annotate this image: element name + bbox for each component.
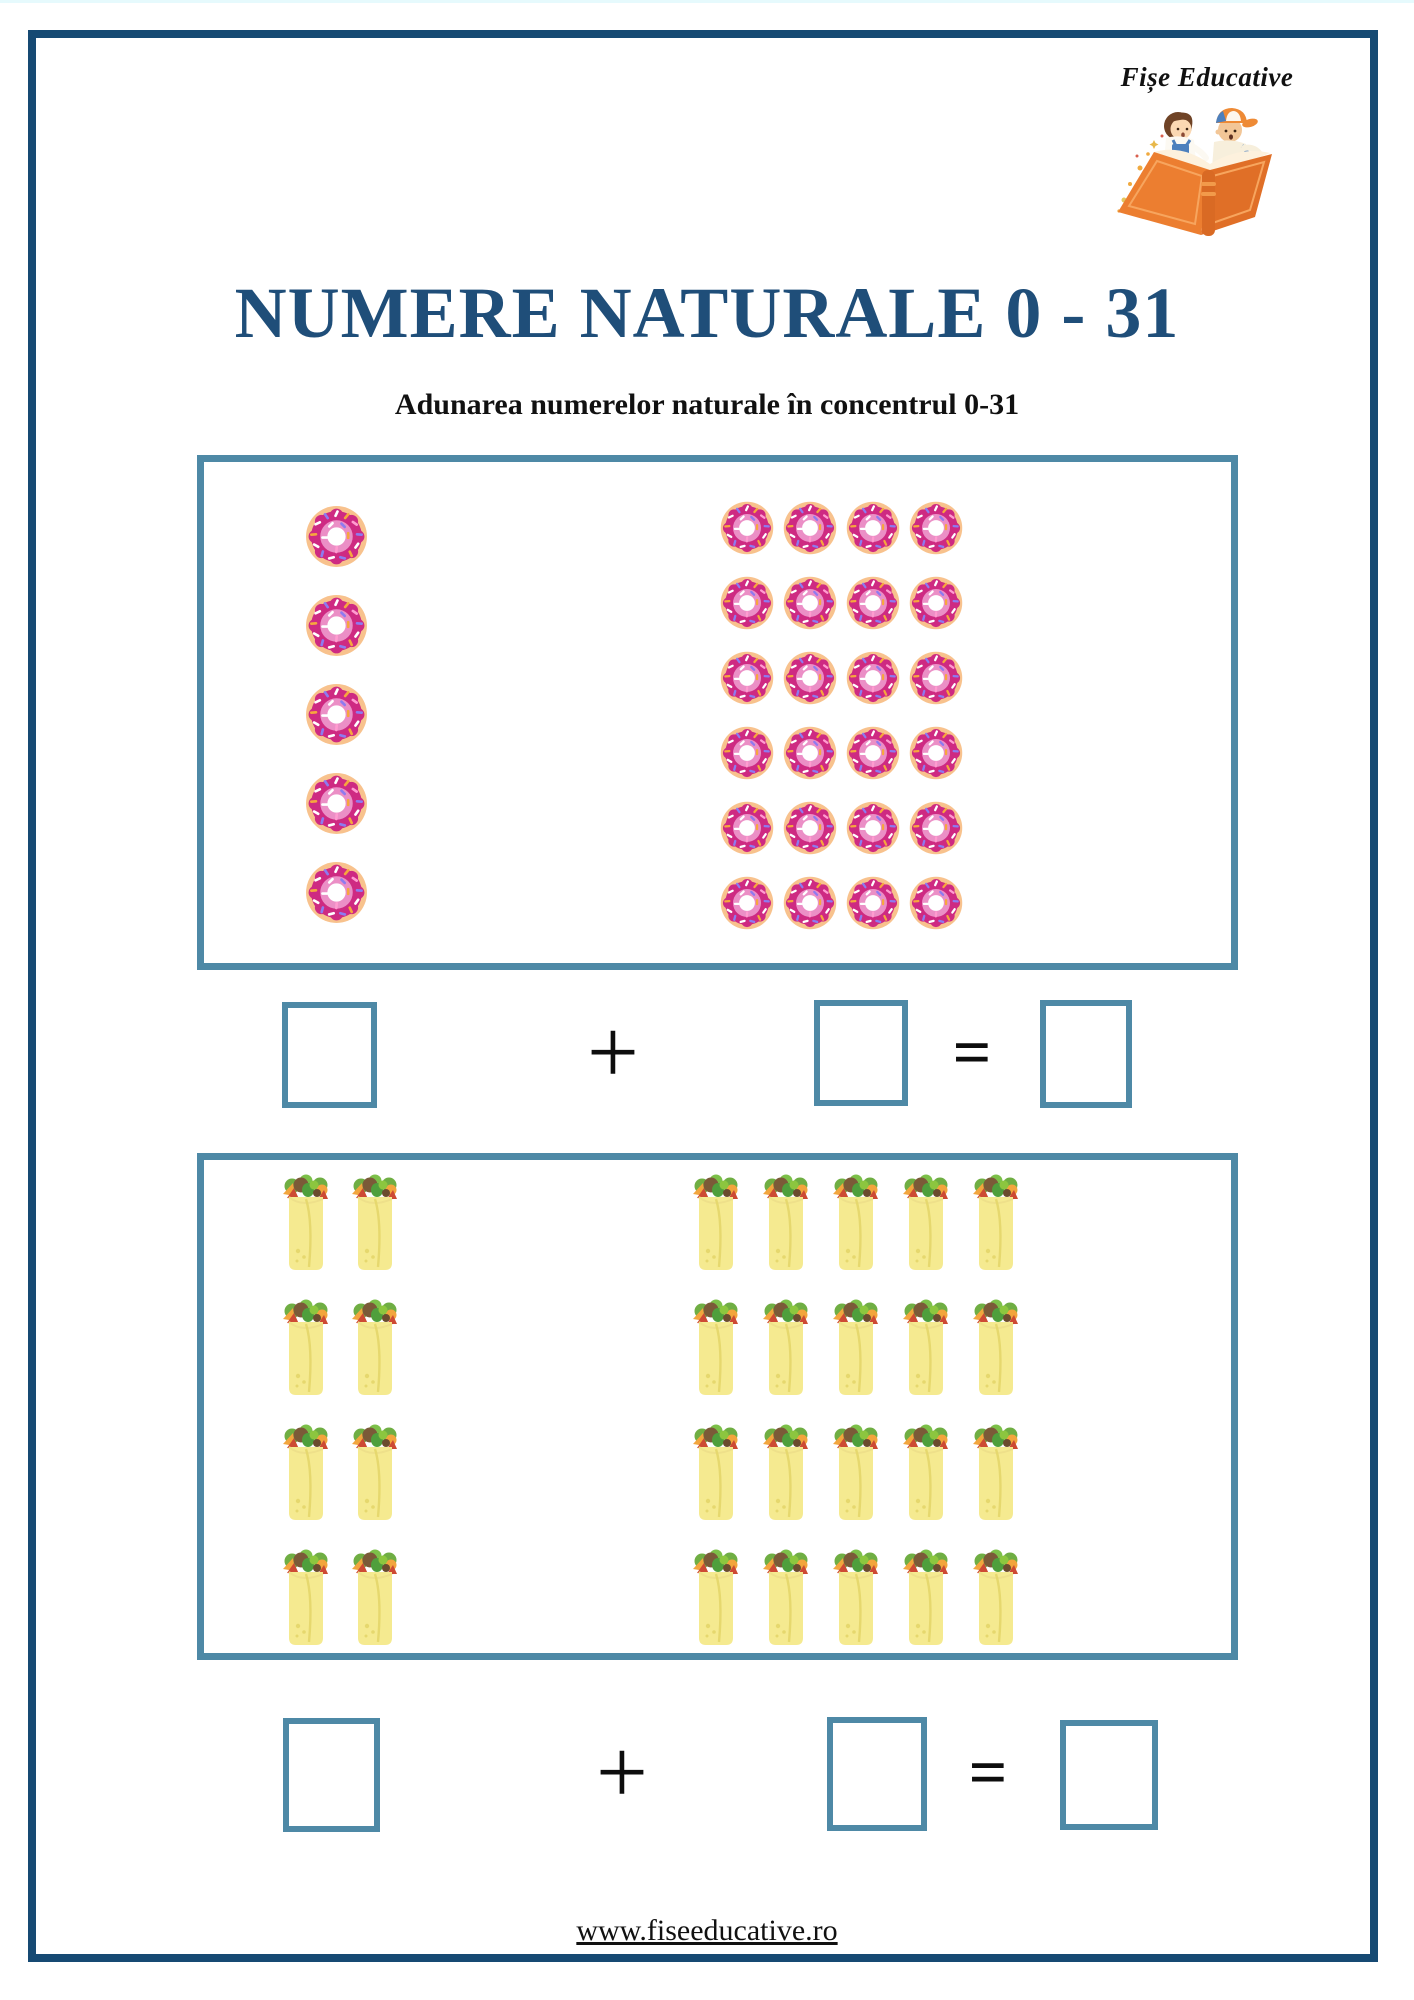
burrito-icon xyxy=(968,1172,1024,1272)
burrito-icon xyxy=(968,1422,1024,1522)
burrito-icon xyxy=(968,1297,1024,1397)
donut-icon xyxy=(845,575,901,631)
donut-icon xyxy=(908,575,964,631)
donut-icon xyxy=(719,575,775,631)
exercise-1-result-box[interactable] xyxy=(1040,1000,1132,1108)
exercise-2-right-group xyxy=(688,1172,1024,1647)
brand-name: Fișe Educative xyxy=(1092,62,1322,93)
burrito-icon xyxy=(347,1172,403,1272)
burrito-icon xyxy=(828,1172,884,1272)
donut-icon xyxy=(845,500,901,556)
exercise-2-equals-sign: = xyxy=(943,1716,1033,1828)
page-title: NUMERE NATURALE 0 - 31 xyxy=(0,272,1414,355)
burrito-icon xyxy=(278,1297,334,1397)
page-subtitle: Adunarea numerelor naturale în concentru… xyxy=(0,388,1414,422)
footer-url-link[interactable]: www.fiseeducative.ro xyxy=(576,1914,837,1947)
donut-icon xyxy=(304,504,369,569)
donut-icon xyxy=(782,650,838,706)
burrito-icon xyxy=(347,1547,403,1647)
burrito-icon xyxy=(347,1297,403,1397)
burrito-icon xyxy=(758,1422,814,1522)
donut-icon xyxy=(908,800,964,856)
footer: www.fiseeducative.ro xyxy=(0,1914,1414,1948)
donut-icon xyxy=(908,500,964,556)
burrito-icon xyxy=(828,1297,884,1397)
donut-icon xyxy=(782,875,838,931)
burrito-icon xyxy=(898,1547,954,1647)
donut-icon xyxy=(845,725,901,781)
burrito-icon xyxy=(898,1172,954,1272)
open-book xyxy=(1118,150,1272,236)
donut-icon xyxy=(719,875,775,931)
exercise-1-equals-sign: = xyxy=(927,1000,1017,1104)
donut-icon xyxy=(908,875,964,931)
donut-icon xyxy=(908,650,964,706)
exercise-1-box xyxy=(197,455,1238,970)
donut-icon xyxy=(304,682,369,747)
donut-icon xyxy=(782,500,838,556)
exercise-1-addend-2-box[interactable] xyxy=(814,1000,908,1106)
exercise-1-right-group xyxy=(719,500,964,931)
burrito-icon xyxy=(828,1547,884,1647)
burrito-icon xyxy=(898,1422,954,1522)
exercise-2-result-box[interactable] xyxy=(1060,1720,1158,1830)
donut-icon xyxy=(908,725,964,781)
burrito-icon xyxy=(828,1422,884,1522)
burrito-icon xyxy=(278,1422,334,1522)
burrito-icon xyxy=(898,1297,954,1397)
burrito-icon xyxy=(758,1172,814,1272)
brand-logo: Fișe Educative xyxy=(1092,62,1322,267)
donut-icon xyxy=(782,575,838,631)
exercise-2-left-group xyxy=(278,1172,403,1647)
donut-icon xyxy=(845,800,901,856)
donut-icon xyxy=(304,860,369,925)
exercise-1-left-group xyxy=(304,504,369,925)
donut-icon xyxy=(719,650,775,706)
donut-icon xyxy=(304,771,369,836)
donut-icon xyxy=(719,725,775,781)
burrito-icon xyxy=(758,1297,814,1397)
donut-icon xyxy=(845,650,901,706)
donut-icon xyxy=(719,800,775,856)
exercise-2-addend-1-box[interactable] xyxy=(283,1718,380,1832)
burrito-icon xyxy=(278,1547,334,1647)
donut-icon xyxy=(845,875,901,931)
burrito-icon xyxy=(278,1172,334,1272)
exercise-2-plus-sign: + xyxy=(577,1718,667,1826)
donut-icon xyxy=(782,725,838,781)
burrito-icon xyxy=(688,1422,744,1522)
burrito-icon xyxy=(758,1547,814,1647)
burrito-icon xyxy=(688,1297,744,1397)
scan-artifact-strip xyxy=(0,0,1414,3)
kids-on-book-illustration xyxy=(1102,96,1312,261)
donut-icon xyxy=(782,800,838,856)
burrito-icon xyxy=(347,1422,403,1522)
donut-icon xyxy=(304,593,369,658)
exercise-2-addend-2-box[interactable] xyxy=(827,1717,927,1831)
burrito-icon xyxy=(688,1172,744,1272)
exercise-2-box xyxy=(197,1153,1238,1660)
burrito-icon xyxy=(968,1547,1024,1647)
worksheet-page: Fișe Educative xyxy=(0,0,1414,2000)
exercise-1-addend-1-box[interactable] xyxy=(282,1002,377,1108)
exercise-1-plus-sign: + xyxy=(568,1002,658,1102)
donut-icon xyxy=(719,500,775,556)
burrito-icon xyxy=(688,1547,744,1647)
